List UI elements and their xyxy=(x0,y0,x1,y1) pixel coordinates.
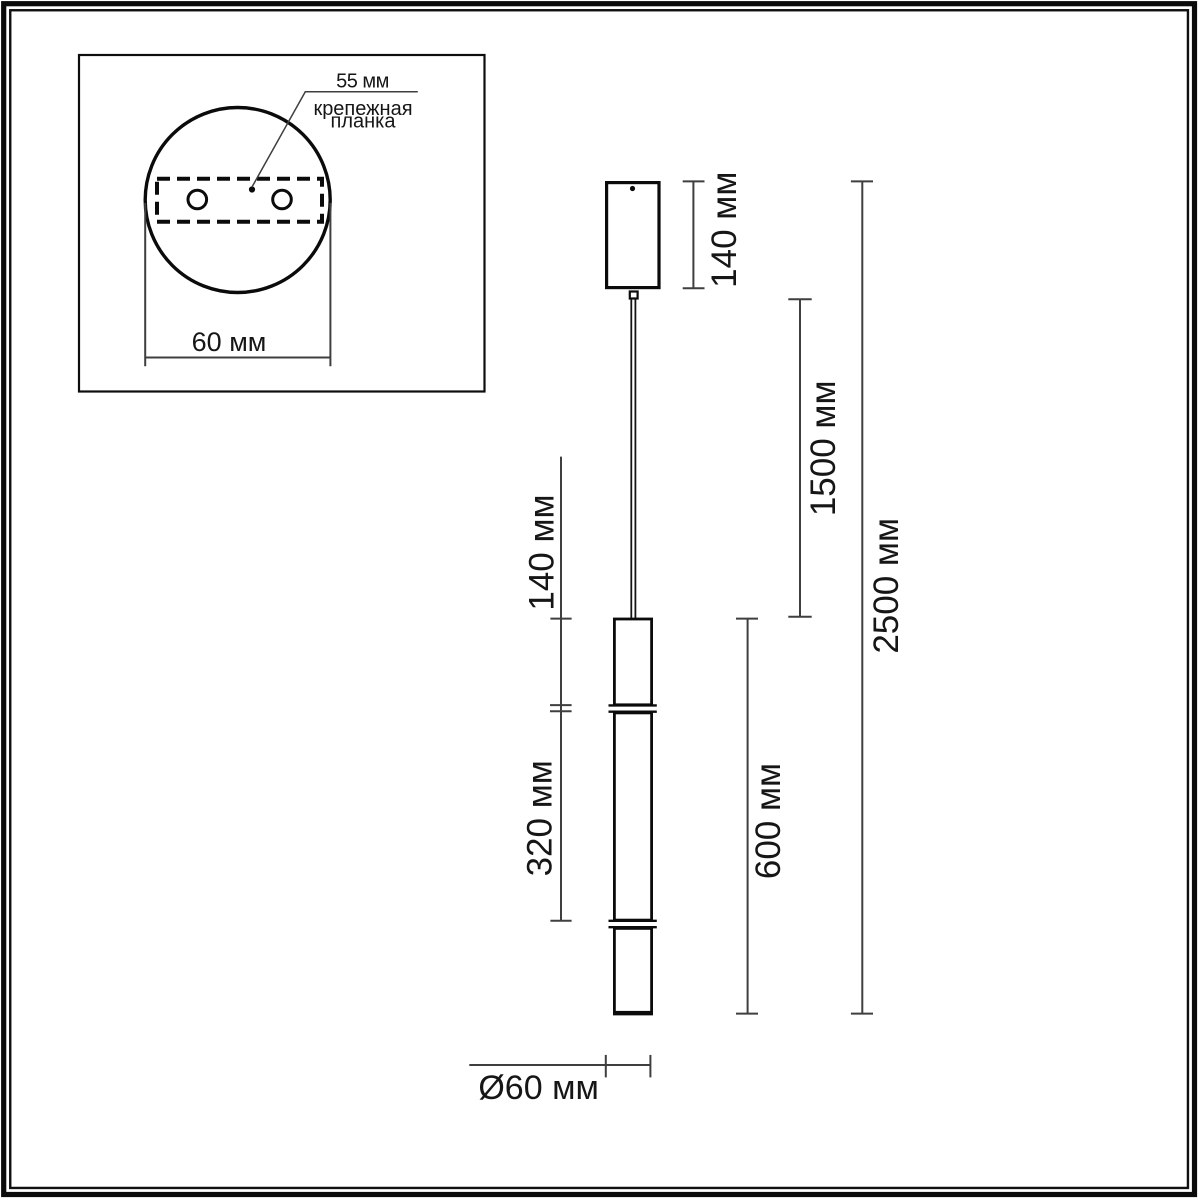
svg-text:320 мм: 320 мм xyxy=(521,760,560,876)
svg-text:Ø60 мм: Ø60 мм xyxy=(478,1069,598,1107)
svg-text:140 мм: 140 мм xyxy=(705,172,744,288)
svg-text:60 мм: 60 мм xyxy=(192,327,267,357)
svg-text:140 мм: 140 мм xyxy=(523,494,562,610)
svg-text:крепежнаяпланка: крепежнаяпланка xyxy=(313,98,412,133)
svg-text:600 мм: 600 мм xyxy=(749,763,788,879)
svg-text:2500 мм: 2500 мм xyxy=(867,518,906,654)
svg-text:1500 мм: 1500 мм xyxy=(804,380,843,516)
svg-text:55 мм: 55 мм xyxy=(336,71,389,93)
